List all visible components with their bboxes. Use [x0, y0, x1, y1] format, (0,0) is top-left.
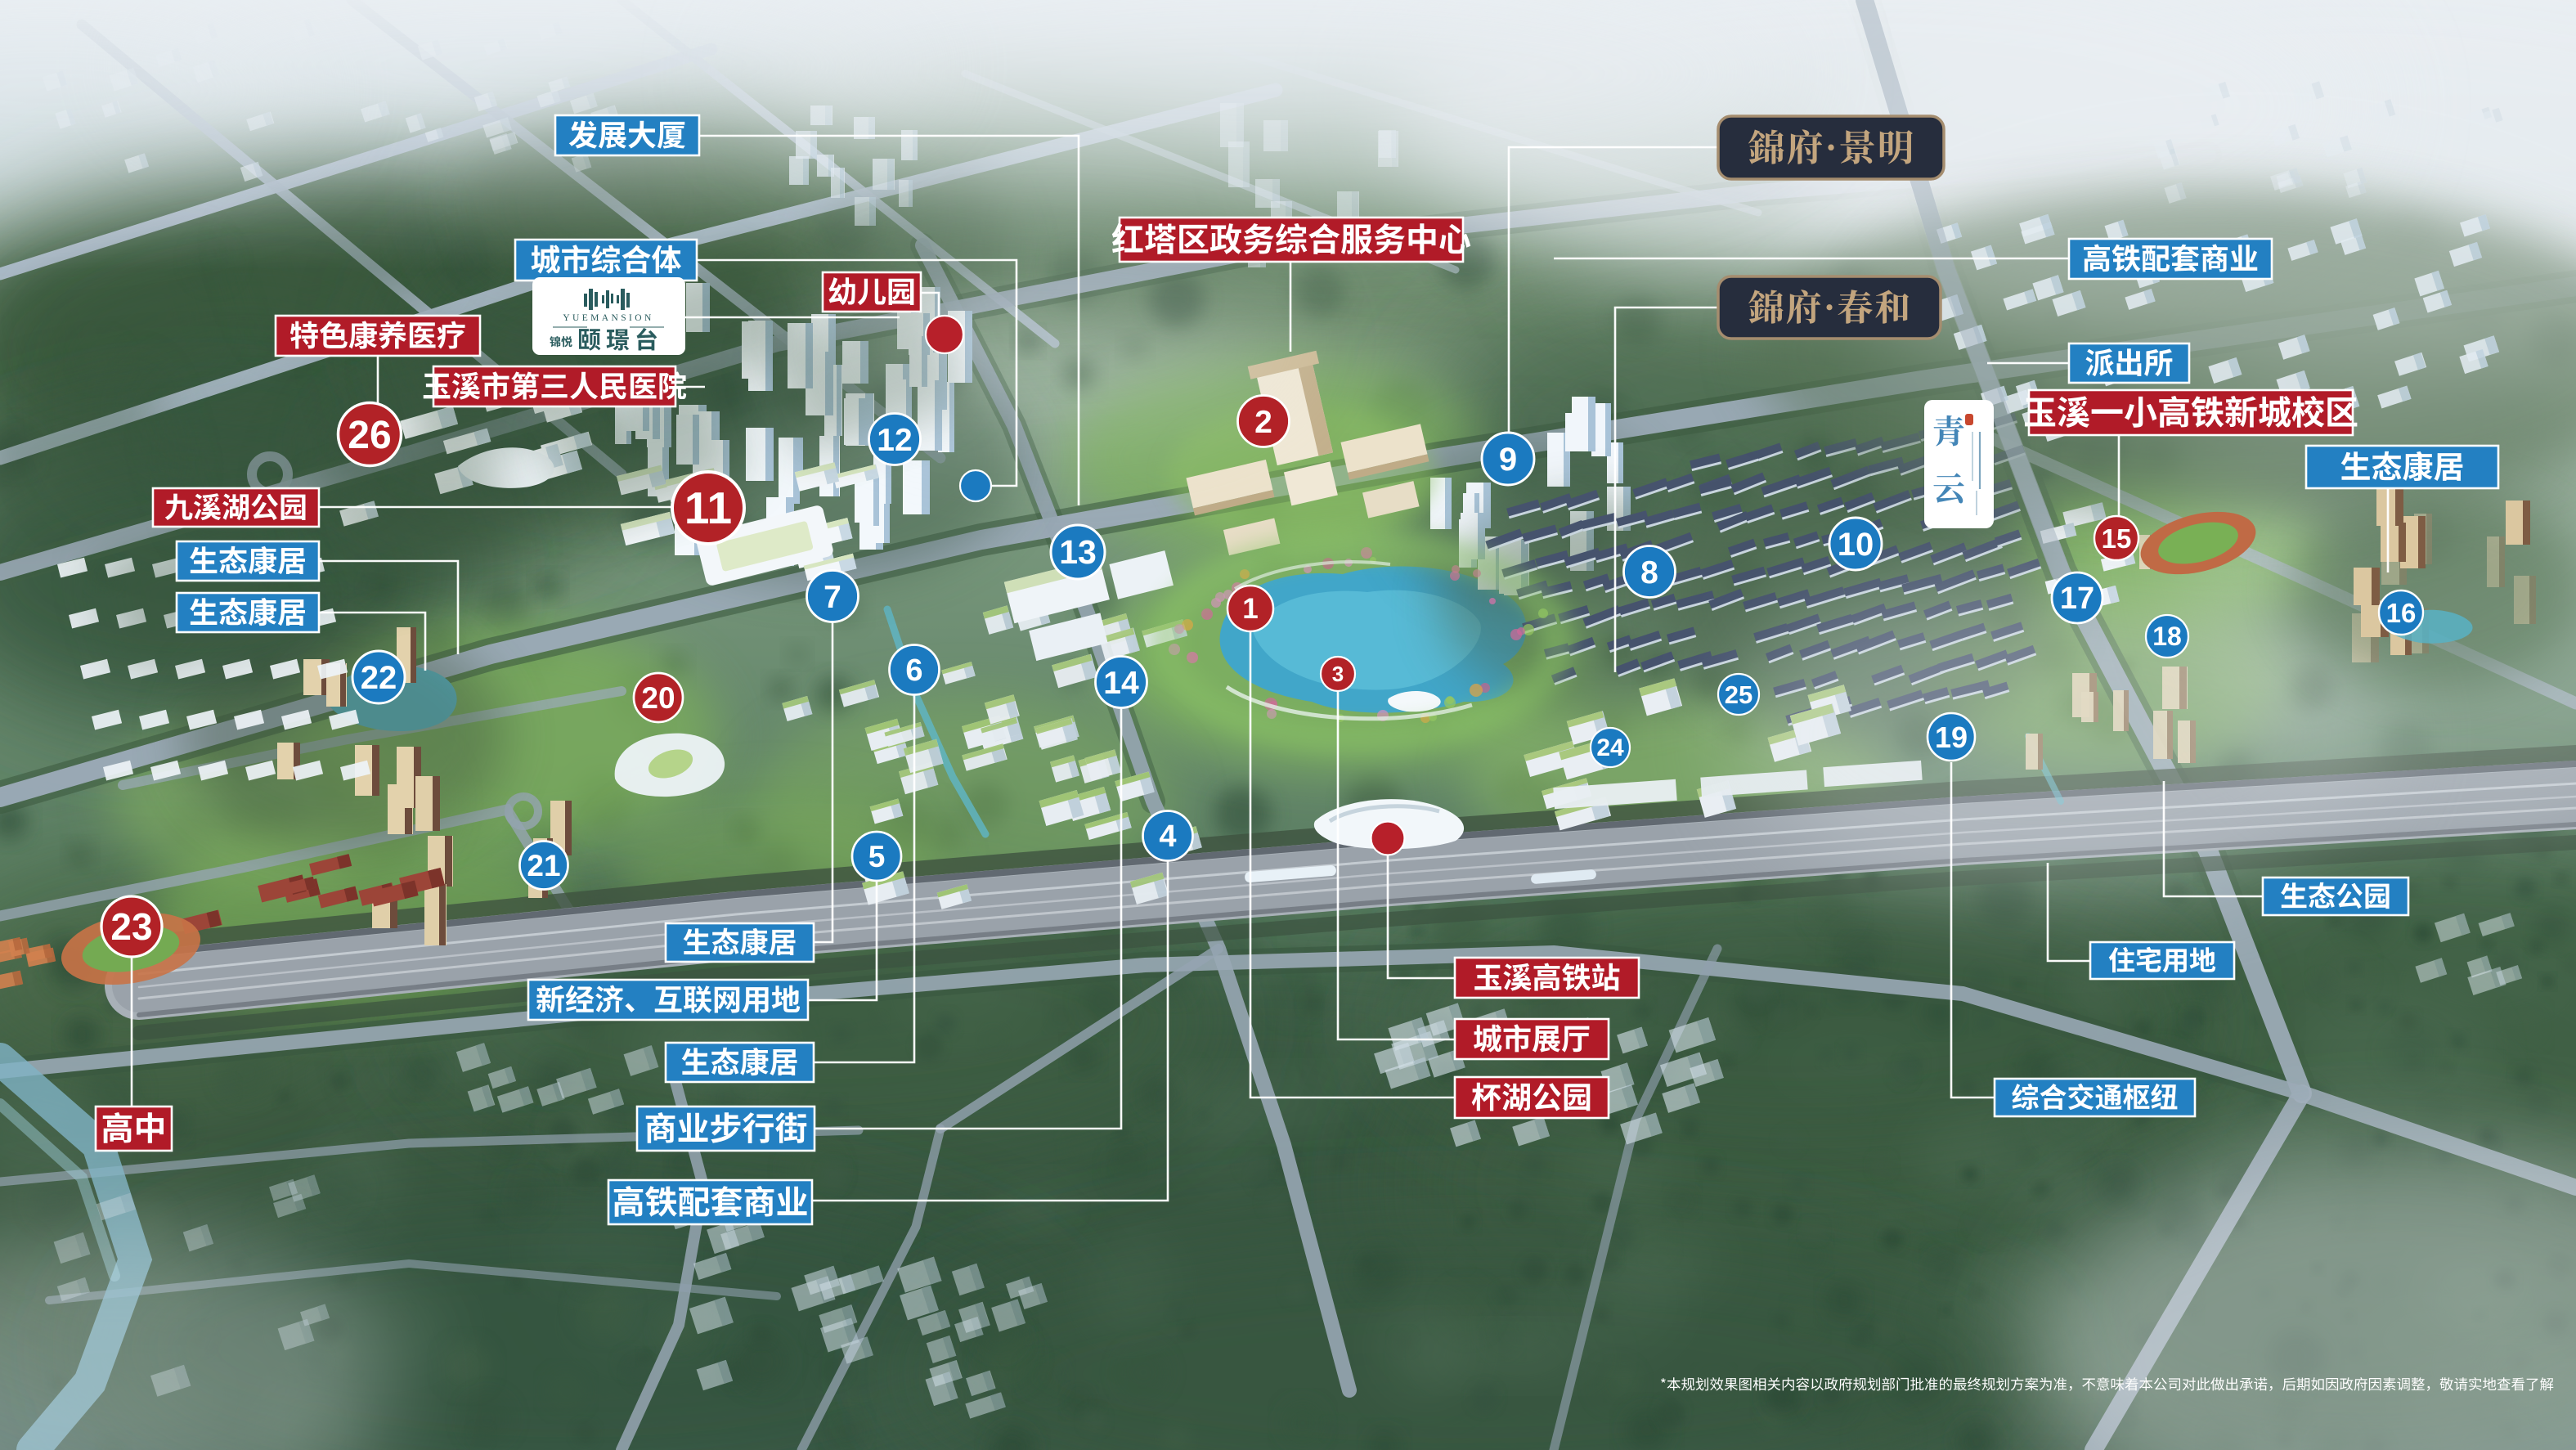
svg-text:1: 1 [1242, 593, 1258, 625]
svg-text:9: 9 [1499, 442, 1517, 478]
svg-text:20: 20 [641, 681, 675, 715]
svg-text:17: 17 [2060, 581, 2094, 616]
svg-text:21: 21 [527, 849, 560, 882]
svg-text:8: 8 [1640, 555, 1658, 590]
svg-text:5: 5 [868, 840, 886, 873]
svg-text:3: 3 [1332, 662, 1344, 686]
svg-text:15: 15 [2102, 523, 2132, 554]
svg-text:19: 19 [1935, 721, 1968, 754]
svg-text:12: 12 [877, 423, 912, 458]
svg-text:25: 25 [1725, 680, 1752, 709]
svg-text:22: 22 [361, 660, 397, 696]
svg-text:26: 26 [348, 414, 391, 457]
svg-text:10: 10 [1838, 527, 1874, 563]
svg-text:11: 11 [684, 483, 732, 533]
svg-text:2: 2 [1254, 405, 1272, 440]
svg-text:23: 23 [110, 905, 152, 948]
svg-text:16: 16 [2386, 598, 2417, 628]
svg-text:6: 6 [905, 653, 922, 688]
svg-text:7: 7 [824, 580, 841, 615]
svg-text:YUEMANSION: YUEMANSION [563, 313, 653, 323]
svg-text:4: 4 [1159, 819, 1176, 854]
svg-text:14: 14 [1103, 666, 1139, 701]
svg-text:13: 13 [1059, 533, 1097, 571]
svg-text:18: 18 [2152, 622, 2182, 651]
svg-text:24: 24 [1596, 734, 1624, 761]
